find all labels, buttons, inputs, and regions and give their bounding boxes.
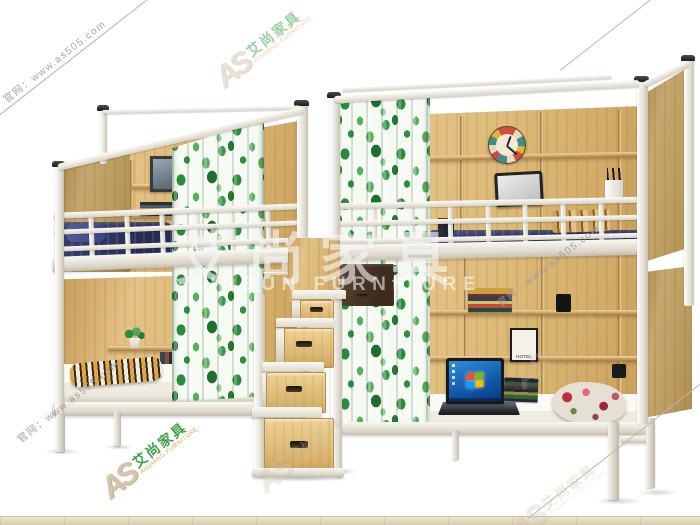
stair-tread	[252, 407, 322, 417]
drawer-handle	[296, 341, 312, 347]
stair-tread	[292, 290, 346, 299]
stair-tread	[262, 362, 324, 371]
drawer-handle	[356, 294, 368, 298]
stair-base	[252, 468, 344, 477]
drawer-handle	[310, 307, 323, 312]
stair-drawer-unit	[0, 0, 700, 525]
product-photo-dorm-bunk-beds: HOTEL	[0, 0, 700, 525]
drawer-handle	[290, 441, 308, 448]
stair-tread	[276, 318, 334, 327]
drawer-handle	[286, 386, 302, 392]
dark-cabinet-door	[340, 264, 394, 306]
